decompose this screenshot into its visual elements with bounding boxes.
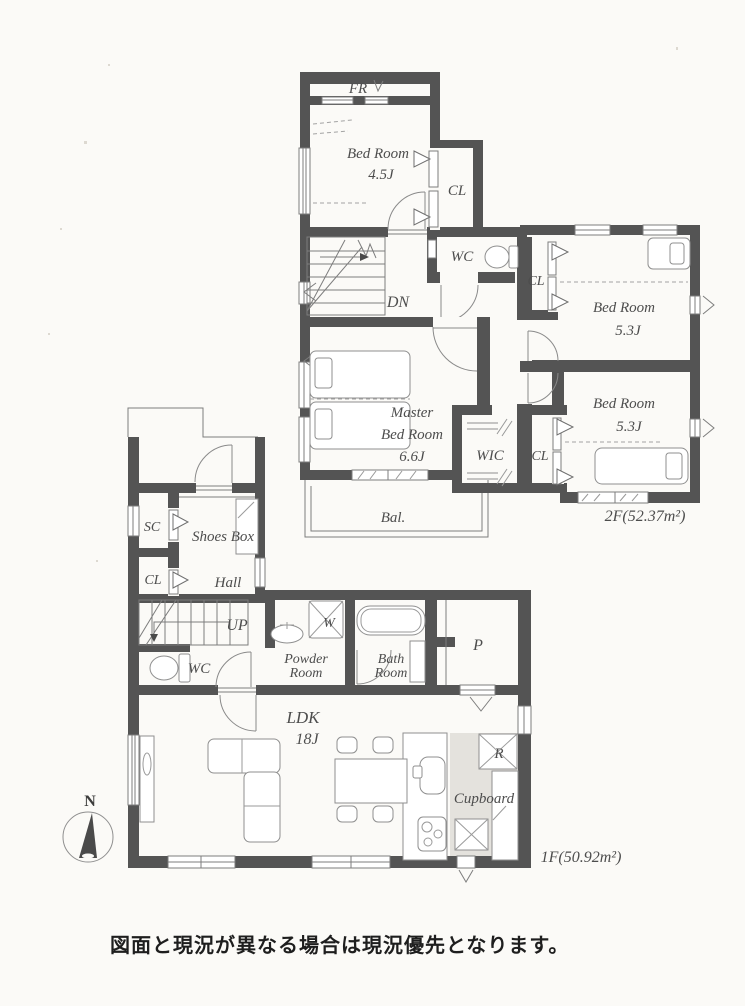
- label-bedroom53b-size: 5.3J: [616, 419, 643, 435]
- label-ldk: LDK: [285, 708, 321, 727]
- label-bedroom53a-size: 5.3J: [615, 323, 642, 339]
- label-closet-c: CL: [531, 449, 548, 464]
- label-bedroom53a-name: Bed Room: [593, 300, 655, 316]
- label-wc-2f: WC: [451, 249, 474, 265]
- porch-1f: [128, 408, 258, 437]
- label-stairs-up: UP: [226, 617, 248, 634]
- floorplan-page: FR Bed Room 4.5J CL WC DN CL Bed Room 5.…: [0, 0, 745, 1006]
- label-closet-1f: CL: [144, 573, 161, 588]
- label-washer: W: [323, 616, 336, 631]
- tv-board: [140, 736, 154, 822]
- label-fr: FR: [348, 81, 367, 97]
- powder-sink: [271, 622, 303, 643]
- floor-2f: FR Bed Room 4.5J CL WC DN CL Bed Room 5.…: [299, 72, 714, 537]
- bed-upper-53: [648, 238, 690, 269]
- label-bath-line2: Room: [374, 666, 408, 681]
- toilet-2f: [485, 246, 518, 268]
- label-powder-line1: Powder: [283, 652, 328, 667]
- label-bedroom45-name: Bed Room: [347, 146, 409, 162]
- sofa: [208, 739, 280, 842]
- dining-set: [335, 737, 407, 822]
- label-sc: SC: [144, 520, 161, 535]
- label-area-1f: 1F(50.92m²): [541, 849, 622, 866]
- label-pantry: P: [472, 637, 483, 654]
- kitchen-counter: [403, 733, 447, 860]
- label-refrigerator: R: [493, 746, 503, 762]
- label-closet-b: CL: [527, 274, 544, 289]
- label-shoes-box: Shoes Box: [192, 529, 254, 545]
- label-ldk-size: 18J: [295, 731, 319, 748]
- label-wc-1f: WC: [188, 661, 211, 677]
- label-stairs-dn: DN: [386, 294, 411, 311]
- label-master-size: 6.6J: [399, 449, 426, 465]
- toilet-1f: [150, 654, 190, 682]
- label-bedroom45-size: 4.5J: [368, 167, 395, 183]
- label-powder-line2: Room: [289, 666, 323, 681]
- bed-lower-53: [595, 448, 688, 484]
- label-cupboard: Cupboard: [454, 791, 515, 807]
- floorplan-drawing: FR Bed Room 4.5J CL WC DN CL Bed Room 5.…: [0, 0, 745, 1006]
- label-area-2f: 2F(52.37m²): [605, 508, 686, 525]
- compass: N: [63, 793, 113, 862]
- label-hall: Hall: [214, 575, 242, 591]
- bed-master-1: [310, 351, 410, 398]
- label-closet-a: CL: [448, 183, 466, 199]
- label-bath-line1: Bath: [378, 652, 404, 667]
- stairs-dn: [307, 237, 385, 315]
- label-bedroom53b-name: Bed Room: [593, 396, 655, 412]
- label-master-line2: Bed Room: [381, 427, 443, 443]
- label-balcony: Bal.: [381, 510, 406, 526]
- label-wic: WIC: [476, 448, 504, 464]
- shoes-box: [236, 499, 258, 554]
- north-label: N: [84, 793, 96, 810]
- disclaimer-text: 図面と現況が異なる場合は現況優先となります。: [110, 933, 569, 957]
- north-needle: [79, 813, 97, 858]
- label-master-line1: Master: [390, 405, 434, 421]
